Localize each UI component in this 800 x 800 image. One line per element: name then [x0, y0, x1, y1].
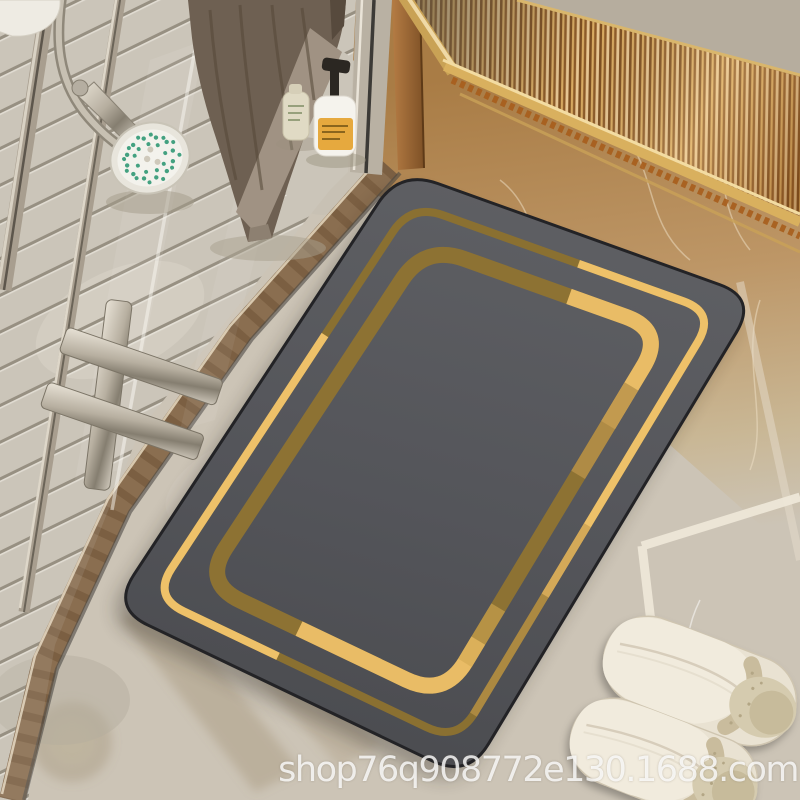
photo-canvas	[0, 0, 800, 800]
bottle-label	[318, 118, 353, 150]
product-photo: shop76q908772e130.1688.com	[0, 0, 800, 800]
